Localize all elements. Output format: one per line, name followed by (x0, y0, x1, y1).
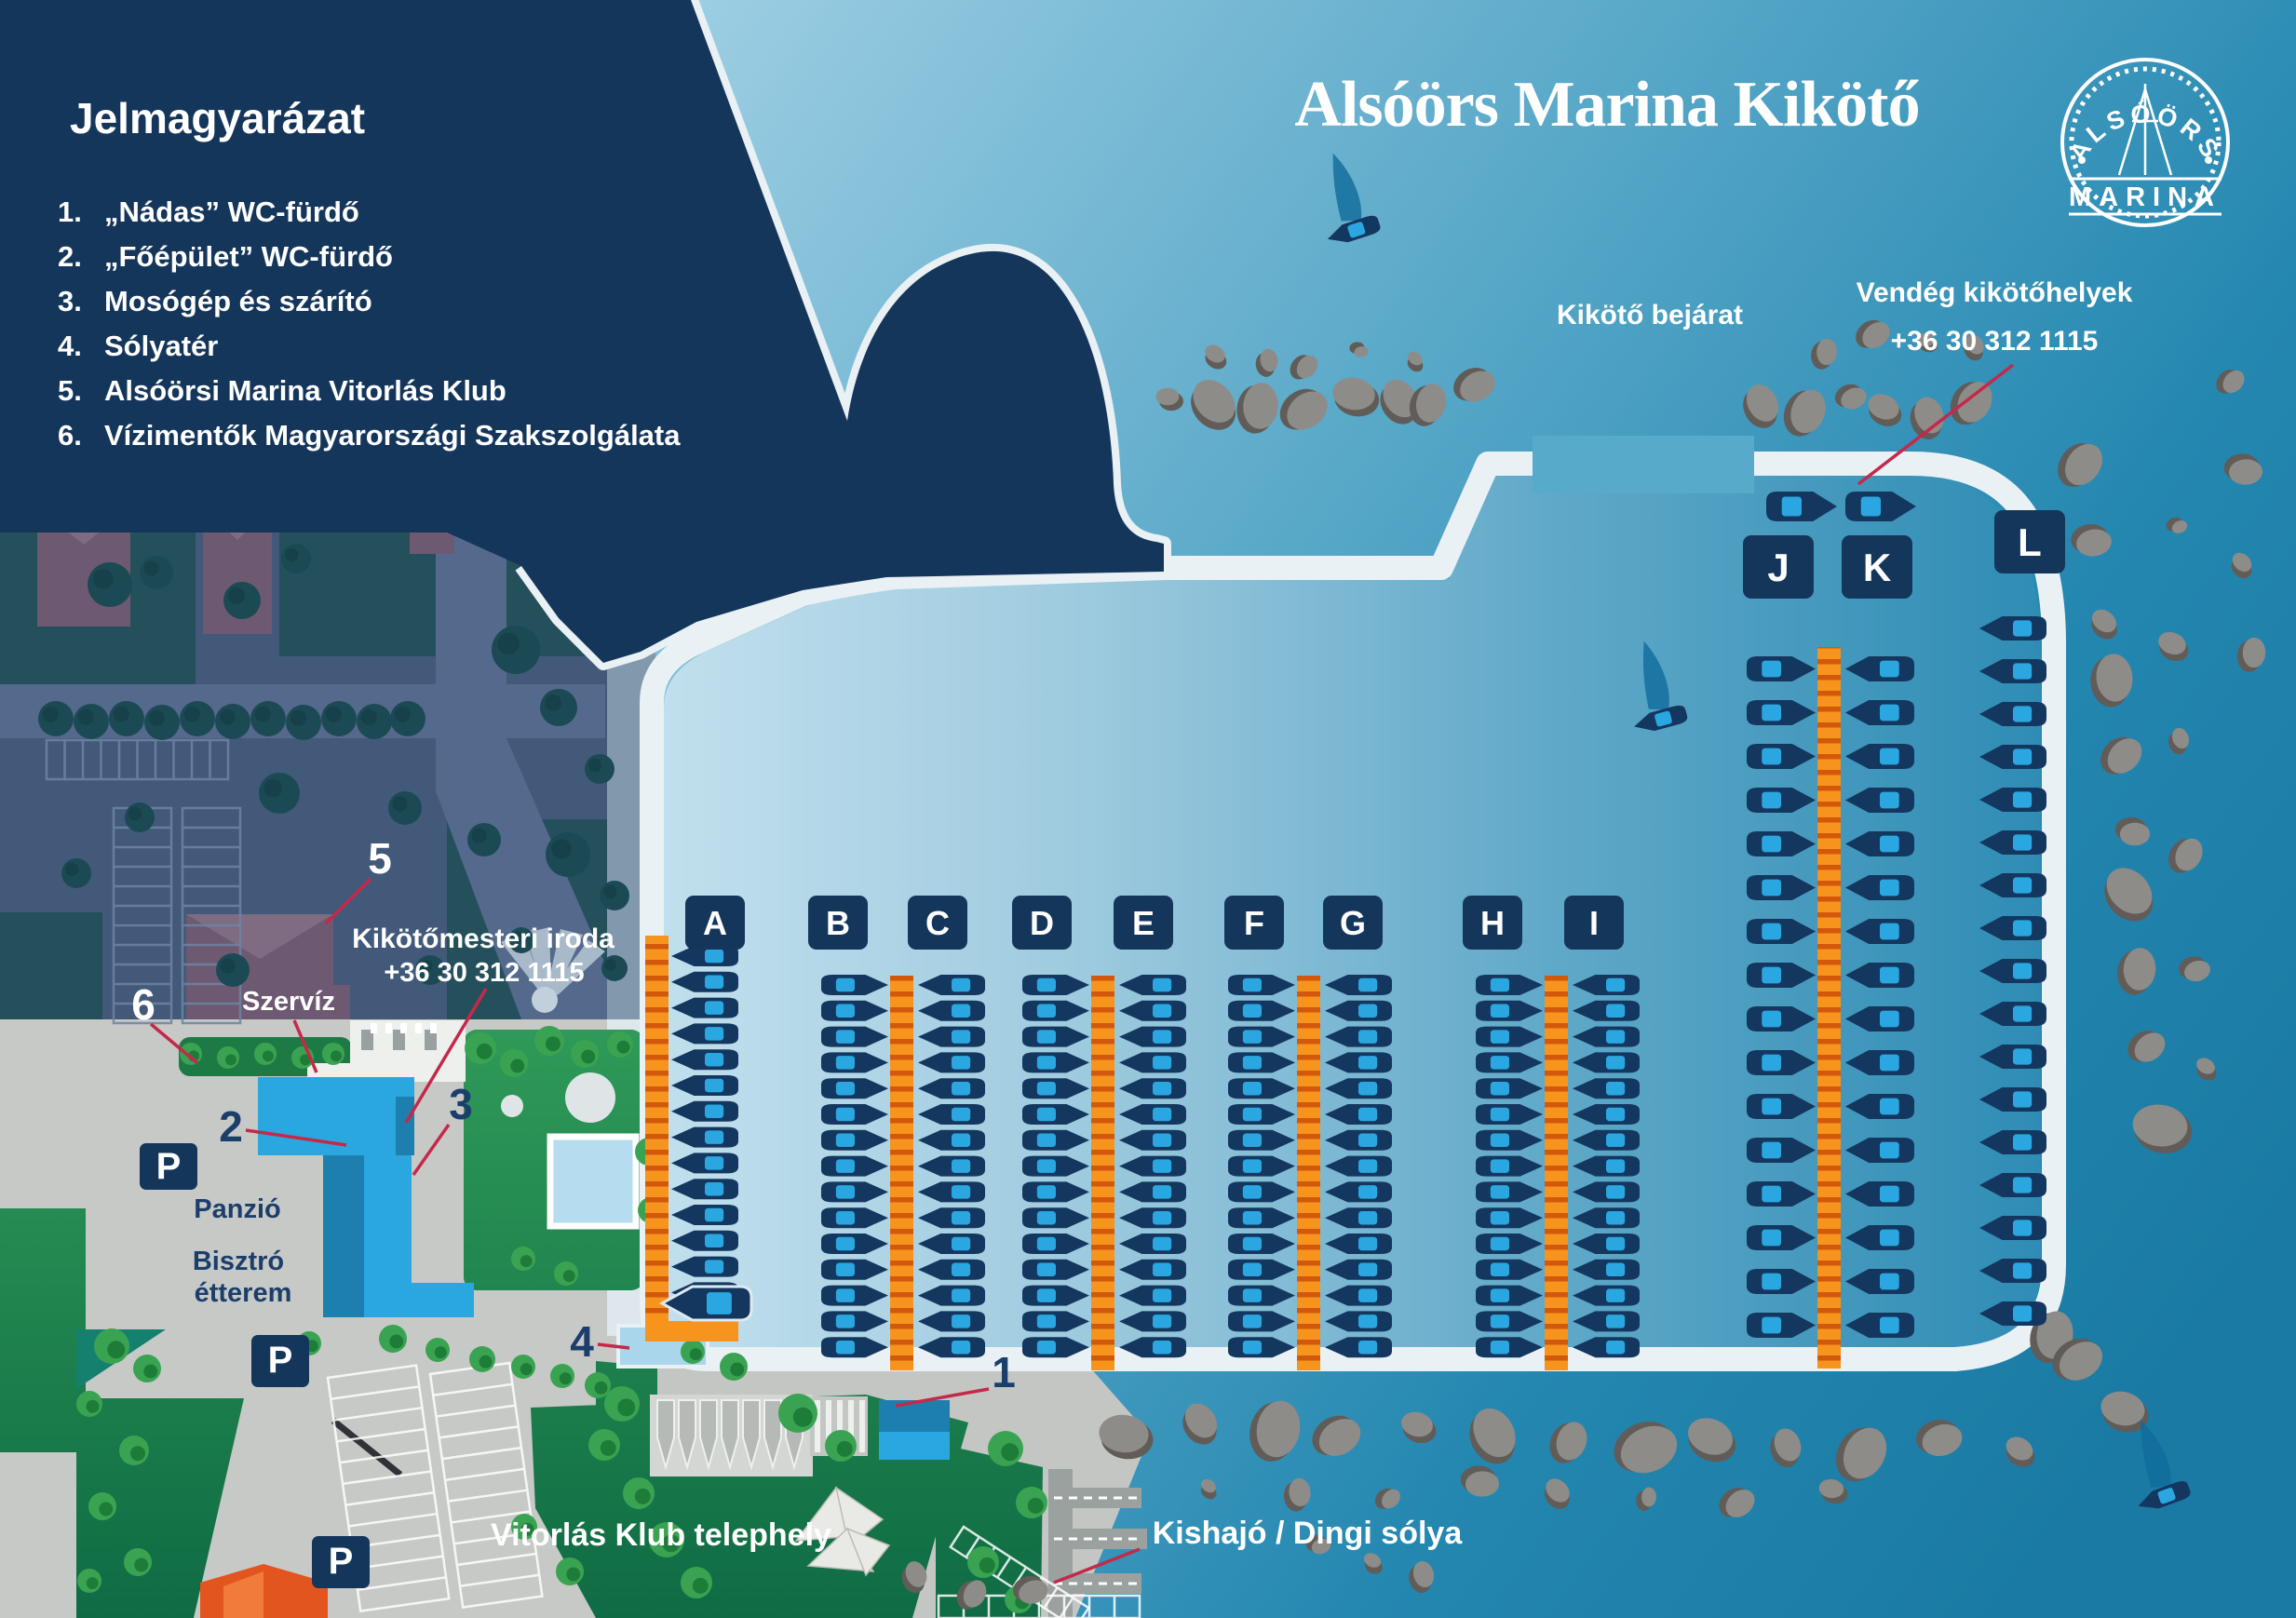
tree-icon (250, 701, 286, 736)
parking-letter: P (156, 1146, 182, 1187)
tree-icon (88, 562, 132, 607)
map-number-1: 1 (992, 1348, 1016, 1396)
legend-item-6: 6.Vízimentők Magyarországi Szakszolgálat… (58, 419, 681, 452)
dock-label-F: F (1224, 896, 1284, 950)
dock-letter: G (1340, 904, 1366, 942)
tree-icon (469, 1346, 495, 1372)
bistro-building (323, 1155, 364, 1317)
tree-icon (281, 544, 311, 573)
map-number-6: 6 (131, 980, 155, 1029)
tree-icon (588, 1429, 620, 1461)
dock-label-A: A (685, 896, 745, 950)
tree-icon (778, 1394, 817, 1433)
label-guest-berths: Vendég kikötőhelyek (1857, 277, 2133, 308)
label-harbor-master: Kikötőmesteri iroda (352, 924, 615, 954)
tree-icon (511, 1247, 535, 1271)
tree-icon (585, 754, 615, 784)
logo-band-text: MARINA (2069, 182, 2222, 212)
tree-icon (109, 701, 144, 736)
tree-icon (125, 802, 155, 832)
dock-letter: J (1767, 546, 1789, 589)
marina-map-page: Jelmagyarázat 1.„Nádas” WC-fürdő2.„Főépü… (0, 0, 2296, 1618)
tree-icon (601, 955, 628, 981)
dock-label-D: D (1012, 896, 1072, 950)
marina-logo: ALSÓÖRS MARINA (2062, 60, 2228, 225)
map-number-3: 3 (449, 1080, 473, 1128)
tree-icon (681, 1567, 712, 1598)
dock-letter: D (1030, 904, 1054, 942)
legend-item-5: 5.Alsóörsi Marina Vitorlás Klub (58, 374, 506, 407)
dock-letter: L (2018, 520, 2042, 564)
tree-icon (88, 1492, 116, 1520)
tree-icon (379, 1325, 407, 1353)
label-guesthouse: Panzió (194, 1194, 280, 1224)
tree-icon (124, 1548, 152, 1576)
tree-icon (74, 704, 109, 739)
tree-icon (540, 689, 577, 726)
label-bistro-2: étterem (195, 1278, 292, 1308)
tree-icon (967, 1546, 999, 1578)
tree-icon (500, 1049, 528, 1077)
dock-letter: H (1480, 904, 1505, 942)
dock-label-H: H (1463, 896, 1522, 950)
dock-label-C: C (908, 896, 967, 950)
tree-icon (286, 705, 321, 740)
parking-sign: P (251, 1335, 309, 1387)
dock-label-B: B (808, 896, 868, 950)
tree-icon (534, 1026, 564, 1056)
dock-label-K: K (1842, 535, 1912, 599)
parking-letter: P (268, 1340, 293, 1381)
tree-icon (223, 582, 261, 619)
pool (550, 1137, 636, 1226)
tree-icon (144, 705, 180, 740)
tree-icon (825, 1430, 857, 1462)
map-number-5: 5 (368, 834, 392, 883)
tree-icon (554, 1261, 578, 1286)
nadas-wc-building (879, 1400, 950, 1432)
legend-item-2: 2.„Főépület” WC-fürdő (58, 240, 393, 273)
tree-icon (1016, 1487, 1047, 1518)
tree-icon (585, 1372, 611, 1398)
label-harbor-master-phone: +36 30 312 1115 (384, 958, 584, 988)
map-number-2: 2 (219, 1102, 243, 1151)
tree-icon (217, 1046, 239, 1069)
dock-letter: I (1589, 904, 1599, 942)
harbor-entrance-channel (1533, 436, 1754, 493)
parking-sign: P (140, 1143, 197, 1190)
tree-icon (76, 1391, 102, 1417)
page-title: Alsóörs Marina Kikötő (1294, 69, 1919, 141)
dock-label-I: I (1564, 896, 1624, 950)
tree-icon (604, 1386, 640, 1422)
tree-icon (61, 858, 91, 888)
tree-icon (425, 1338, 450, 1362)
dock-letter: A (703, 904, 727, 942)
dock-letter: E (1132, 904, 1155, 942)
tree-icon (465, 1032, 496, 1064)
tree-icon (390, 701, 425, 736)
map-number-4: 4 (570, 1317, 594, 1366)
dock-letter: B (826, 904, 850, 942)
legend-item-3: 3.Mosógép és szárító (58, 285, 372, 317)
tree-icon (322, 1043, 344, 1065)
label-bistro-1: Bisztró (193, 1247, 284, 1276)
tree-icon (38, 701, 74, 736)
tree-icon (321, 701, 357, 736)
tree-icon (467, 823, 501, 856)
tree-icon (77, 1569, 101, 1593)
label-guest-berths-phone: +36 30 312 1115 (1891, 326, 2099, 357)
tree-icon (492, 626, 540, 674)
tree-icon (259, 773, 300, 814)
label-harbor-entrance: Kikötő bejárat (1557, 300, 1743, 330)
tree-icon (571, 1040, 599, 1068)
parking-letter: P (329, 1541, 354, 1582)
dock-letter: F (1244, 904, 1264, 942)
tree-icon (681, 1340, 705, 1364)
label-dinghy-slipway: Kishajó / Dingi sólya (1153, 1516, 1464, 1551)
tree-icon (623, 1477, 655, 1509)
dock-letter: K (1863, 546, 1891, 589)
tree-icon (550, 1364, 574, 1388)
parking-sign: P (312, 1536, 370, 1588)
tree-icon (94, 1328, 129, 1364)
tree-icon (133, 1355, 161, 1382)
dock-letter: C (925, 904, 950, 942)
legend-title: Jelmagyarázat (70, 94, 365, 142)
dock-label-L: L (1994, 510, 2065, 573)
label-service: Szervíz (242, 987, 335, 1017)
tree-icon (607, 1031, 633, 1058)
marina-map: Jelmagyarázat 1.„Nádas” WC-fürdő2.„Főépü… (0, 0, 2296, 1618)
dock-label-J: J (1743, 535, 1814, 599)
tree-icon (600, 881, 629, 910)
dock-label-E: E (1114, 896, 1173, 950)
tree-icon (140, 556, 173, 589)
tree-icon (546, 832, 590, 877)
dock-label-G: G (1323, 896, 1383, 950)
tree-icon (720, 1353, 748, 1381)
label-sailing-club: Vitorlás Klub telephely (491, 1517, 831, 1553)
tree-icon (216, 953, 250, 987)
tree-icon (119, 1436, 149, 1465)
legend-item-4: 4.Sólyatér (58, 330, 218, 362)
tree-icon (988, 1431, 1023, 1466)
tree-icon (215, 704, 250, 739)
tree-icon (180, 1043, 202, 1065)
tree-icon (511, 1355, 535, 1379)
tree-icon (556, 1557, 584, 1585)
tree-icon (357, 704, 392, 739)
tree-icon (254, 1043, 277, 1065)
tree-icon (180, 701, 215, 736)
tree-icon (388, 791, 422, 825)
